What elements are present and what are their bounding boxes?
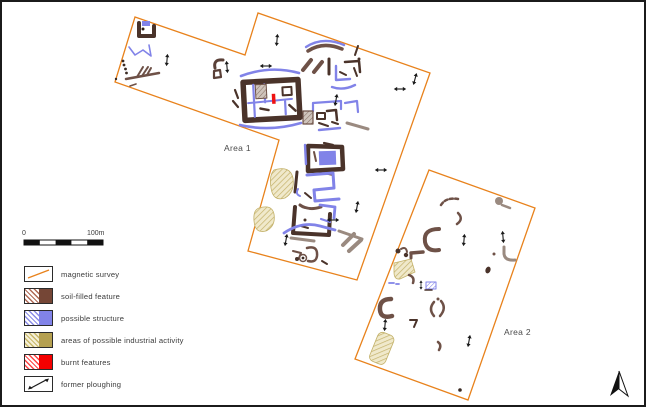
legend-label: possible structure bbox=[61, 314, 124, 323]
industrial-activity-swatch-icon bbox=[24, 332, 53, 348]
soil-filled-feature-swatch-icon bbox=[24, 288, 53, 304]
scale-start-label: 0 bbox=[22, 230, 26, 237]
north-arrow-icon bbox=[610, 371, 628, 396]
feature-small-pit bbox=[493, 253, 496, 256]
feature-corner-pit bbox=[458, 388, 462, 392]
legend-label: former ploughing bbox=[61, 380, 121, 389]
area-2-features bbox=[380, 197, 515, 392]
legend-label: areas of possible industrial activity bbox=[61, 336, 184, 345]
scale-end-label: 100m bbox=[87, 230, 105, 237]
feature-ring-cluster bbox=[291, 238, 327, 264]
legend-item-possible-structure: possible structure bbox=[24, 310, 184, 326]
area-2-outline bbox=[355, 170, 535, 400]
area-1-label: Area 1 bbox=[224, 143, 251, 153]
legend: magnetic survey soil-filled feature poss… bbox=[24, 266, 184, 398]
former-ploughing-swatch-icon bbox=[24, 376, 53, 392]
feature-square-enclosure bbox=[305, 143, 343, 175]
former-ploughing-arrows bbox=[164, 34, 505, 348]
feature-s-structure bbox=[295, 172, 339, 209]
feature-angle-mark bbox=[410, 320, 417, 327]
feature-dark-pit bbox=[484, 266, 491, 274]
feature-small-arc bbox=[457, 213, 461, 224]
legend-label: soil-filled feature bbox=[61, 292, 120, 301]
feature-central-enclosure bbox=[233, 70, 301, 128]
legend-label: magnetic survey bbox=[61, 270, 119, 279]
feature-pit bbox=[404, 253, 408, 257]
feature-comma-ditch bbox=[438, 342, 440, 350]
legend-item-former-ploughing: former ploughing bbox=[24, 376, 184, 392]
legend-item-soil-filled-feature: soil-filled feature bbox=[24, 288, 184, 304]
scale-bar bbox=[24, 240, 103, 245]
feature-ring-ditch bbox=[425, 229, 439, 250]
feature-linear-ditches bbox=[126, 67, 159, 86]
magnetic-survey-swatch-icon bbox=[24, 266, 53, 282]
feature-horseshoe-ditch bbox=[380, 299, 392, 317]
legend-item-burnt-features: burnt features bbox=[24, 354, 184, 370]
area-2-label: Area 2 bbox=[504, 327, 531, 337]
feature-bracket-structure bbox=[329, 59, 360, 89]
area-1-outline bbox=[115, 13, 430, 280]
feature-curved-gully bbox=[504, 247, 515, 260]
survey-figure: Area 1 Area 2 0 100m magnetic survey soi… bbox=[0, 0, 646, 407]
feature-dotted-arc bbox=[441, 199, 458, 205]
possible-structure-swatch-icon bbox=[24, 310, 53, 326]
feature-penannular-ring bbox=[431, 298, 444, 317]
legend-item-industrial-activity: areas of possible industrial activity bbox=[24, 332, 184, 348]
burnt-feature bbox=[272, 94, 276, 104]
legend-label: burnt features bbox=[61, 358, 111, 367]
burnt-features-swatch-icon bbox=[24, 354, 53, 370]
feature-blue-zigzag bbox=[129, 45, 151, 56]
feature-angled-ditch bbox=[411, 252, 423, 258]
feature-arc-and-pit bbox=[214, 60, 223, 78]
feature-hook bbox=[409, 275, 414, 283]
feature-pit-and-hook bbox=[396, 248, 408, 254]
feature-blue-structure-small bbox=[425, 282, 436, 290]
feature-blue-ticks bbox=[389, 283, 399, 284]
legend-item-magnetic-survey: magnetic survey bbox=[24, 266, 184, 282]
